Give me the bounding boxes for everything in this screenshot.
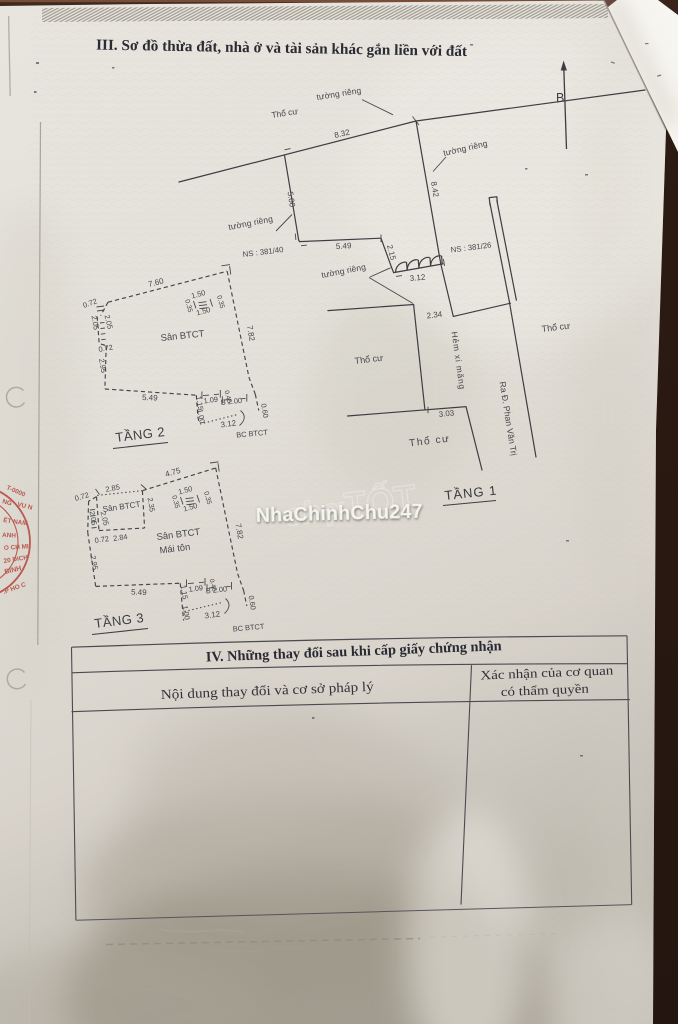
svg-text:B: B: [556, 91, 564, 105]
svg-text:5.49: 5.49: [336, 241, 353, 251]
svg-text:3.03: 3.03: [438, 408, 455, 419]
svg-text:5.49: 5.49: [131, 588, 147, 598]
svg-text:3.12: 3.12: [409, 273, 426, 283]
svg-text:ANH: ANH: [2, 532, 16, 539]
svg-text:NhaChinhChu247: NhaChinhChu247: [256, 500, 424, 527]
svg-text:5.49: 5.49: [142, 393, 158, 403]
